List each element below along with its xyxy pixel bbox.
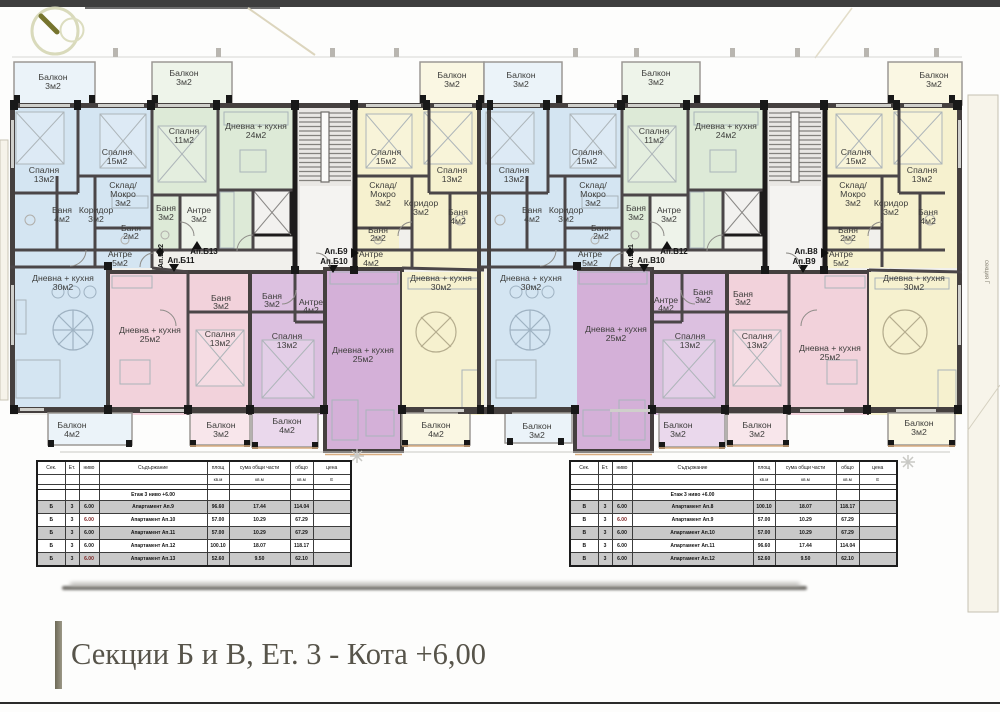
svg-text:Ап.В8: Ап.В8 bbox=[794, 247, 818, 256]
svg-text:Ап.Б13: Ап.Б13 bbox=[190, 247, 218, 256]
svg-text:Баня4м2: Баня4м2 bbox=[522, 205, 542, 224]
svg-text:Ап.В12: Ап.В12 bbox=[660, 247, 688, 256]
svg-text:секция Г: секция Г bbox=[983, 260, 989, 285]
svg-text:Баня2м2: Баня2м2 bbox=[121, 223, 141, 241]
svg-text:Ап.Б12: Ап.Б12 bbox=[158, 244, 165, 268]
svg-text:Баня4м2: Баня4м2 bbox=[918, 207, 938, 226]
svg-text:Ап.В10: Ап.В10 bbox=[637, 256, 665, 265]
svg-text:Баня3м2: Баня3м2 bbox=[693, 287, 713, 305]
svg-text:Баня4м2: Баня4м2 bbox=[448, 207, 468, 226]
svg-text:Баня2м2: Баня2м2 bbox=[368, 225, 388, 243]
svg-text:Баня3м2: Баня3м2 bbox=[626, 203, 646, 222]
svg-text:Ап.Б9: Ап.Б9 bbox=[324, 247, 348, 256]
svg-text:Баня3м2: Баня3м2 bbox=[262, 291, 282, 309]
svg-text:Ап.Б11: Ап.Б11 bbox=[167, 256, 195, 265]
svg-text:Ап.В11: Ап.В11 bbox=[628, 244, 635, 268]
svg-text:Ап.Б10: Ап.Б10 bbox=[320, 257, 348, 266]
svg-text:Баня2м2: Баня2м2 bbox=[591, 223, 611, 241]
svg-text:Баня3м2: Баня3м2 bbox=[211, 293, 231, 311]
svg-text:Баня3м2: Баня3м2 bbox=[733, 289, 753, 307]
svg-text:Баня2м2: Баня2м2 bbox=[838, 225, 858, 243]
svg-text:Баня4м2: Баня4м2 bbox=[52, 205, 72, 224]
svg-text:Баня3м2: Баня3м2 bbox=[156, 203, 176, 222]
svg-text:Ап.В9: Ап.В9 bbox=[792, 257, 816, 266]
